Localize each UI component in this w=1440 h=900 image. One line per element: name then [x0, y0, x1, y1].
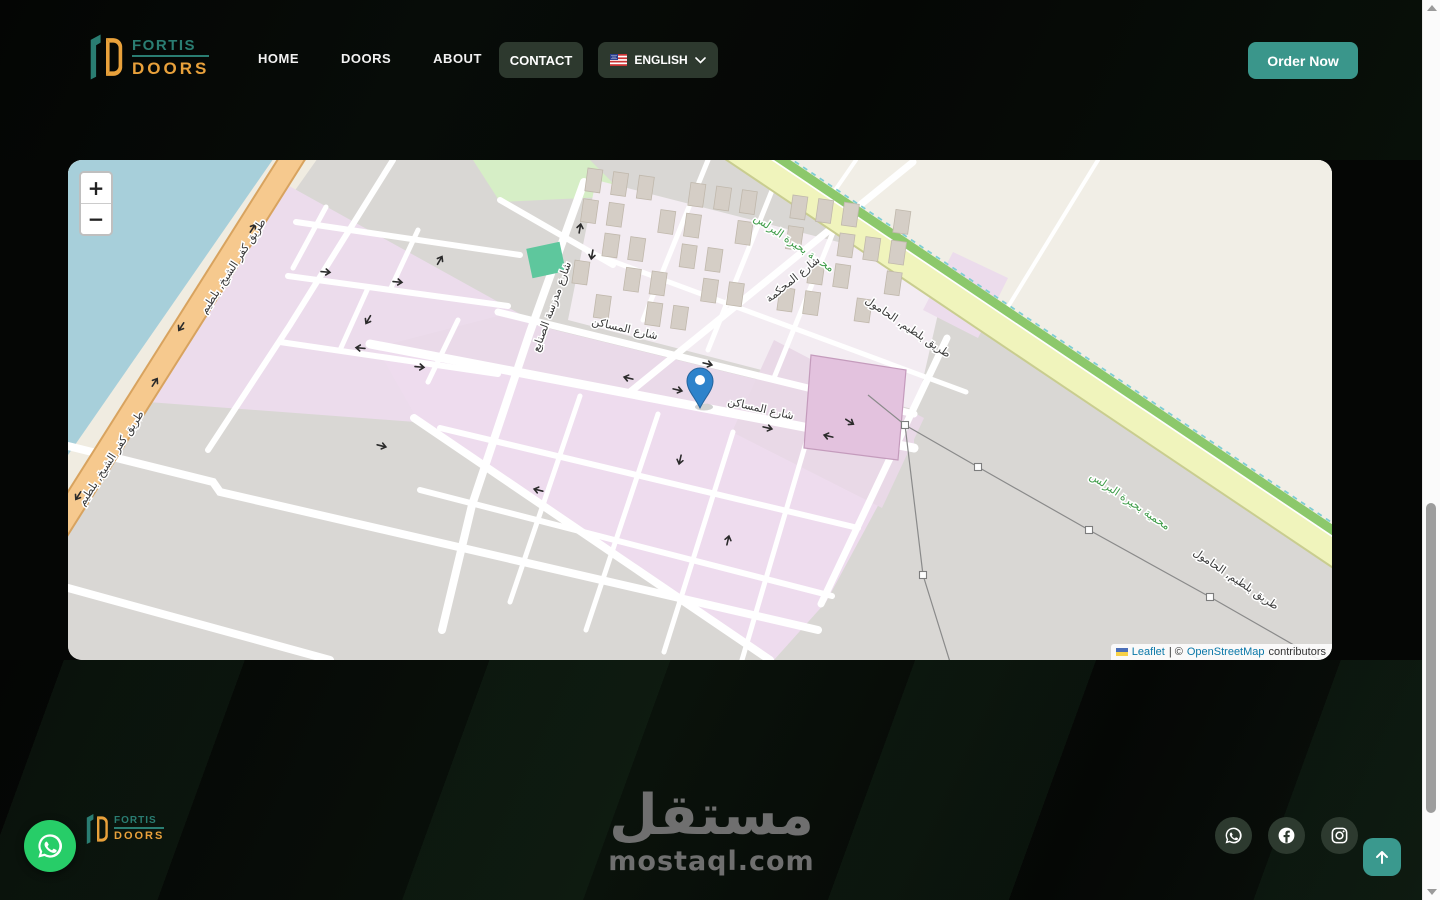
main-nav: HOME DOORS ABOUT	[258, 51, 482, 66]
header: FORTIS DOORS HOME DOORS ABOUT CONTACT	[0, 0, 1423, 160]
nav-about[interactable]: ABOUT	[433, 51, 482, 66]
social-whatsapp-button[interactable]	[1215, 817, 1252, 854]
header-logo[interactable]: FORTIS DOORS	[88, 32, 209, 82]
logo-divider	[132, 55, 209, 57]
large-building	[804, 355, 906, 460]
logo-fortis: FORTIS	[132, 38, 209, 53]
order-now-label: Order Now	[1267, 53, 1339, 69]
whatsapp-float-button[interactable]	[24, 820, 76, 872]
order-now-button[interactable]: Order Now	[1248, 42, 1358, 79]
watermark-domain: mostaql.com	[0, 846, 1423, 877]
language-label: ENGLISH	[634, 53, 687, 67]
map-attribution: Leaflet | © OpenStreetMap contributors	[1111, 644, 1332, 660]
ukraine-flag-icon	[1116, 648, 1128, 656]
footer: FORTIS DOORS مستقل mostaql.com	[0, 660, 1423, 900]
map[interactable]: طريق كفر الشيخ, بلطيم طريق كفر الشيخ, بل…	[68, 160, 1332, 660]
zoom-out-button[interactable]: −	[81, 204, 111, 234]
language-selector[interactable]: ENGLISH	[598, 42, 718, 78]
attribution-contributors: contributors	[1269, 646, 1326, 658]
social-instagram-button[interactable]	[1321, 817, 1358, 854]
whatsapp-icon	[1224, 826, 1243, 845]
watermark: مستقل mostaql.com	[0, 788, 1423, 877]
scrollbar-up-arrow[interactable]	[1427, 5, 1437, 11]
facebook-icon	[1277, 826, 1296, 845]
social-facebook-button[interactable]	[1268, 817, 1305, 854]
logo-text: FORTIS DOORS	[132, 38, 209, 77]
chevron-down-icon	[695, 57, 706, 64]
scrollbar-thumb[interactable]	[1426, 503, 1436, 813]
contact-label: CONTACT	[510, 53, 573, 68]
instagram-icon	[1330, 826, 1349, 845]
arrow-up-icon	[1374, 849, 1390, 865]
openstreetmap-link[interactable]: OpenStreetMap	[1187, 646, 1265, 658]
watermark-arabic: مستقل	[0, 788, 1423, 844]
page: FORTIS DOORS HOME DOORS ABOUT CONTACT	[0, 0, 1440, 900]
logo-doors: DOORS	[132, 60, 209, 77]
attribution-divider: | ©	[1169, 646, 1183, 658]
scrollbar-down-arrow[interactable]	[1427, 889, 1437, 895]
map-zoom-control: + −	[79, 171, 113, 236]
map-canvas: طريق كفر الشيخ, بلطيم طريق كفر الشيخ, بل…	[68, 160, 1332, 660]
scrollbar-track[interactable]	[1422, 0, 1440, 900]
nav-home[interactable]: HOME	[258, 51, 299, 66]
us-flag-icon	[610, 54, 627, 66]
whatsapp-icon	[36, 832, 64, 860]
leaflet-link[interactable]: Leaflet	[1132, 646, 1165, 658]
zoom-in-button[interactable]: +	[81, 173, 111, 204]
nav-doors[interactable]: DOORS	[341, 51, 391, 66]
fortis-doors-logo-icon	[88, 32, 124, 82]
nav-contact-button[interactable]: CONTACT	[499, 42, 583, 78]
scroll-to-top-button[interactable]	[1363, 838, 1401, 876]
